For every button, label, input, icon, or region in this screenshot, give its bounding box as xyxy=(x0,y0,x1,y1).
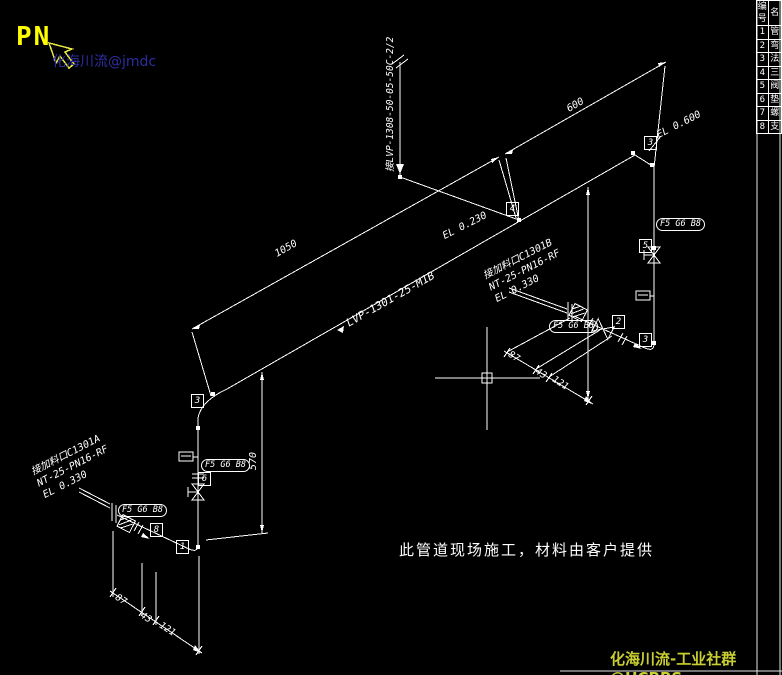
bom-row-no: 4 xyxy=(757,66,769,80)
fitting-tag-left-nozzle: F5 G6 B8 xyxy=(118,504,167,517)
bom-row-no: 2 xyxy=(757,39,769,53)
watermark-top: 化海川流@jmdc xyxy=(52,51,156,71)
dim-line-600 xyxy=(505,62,666,154)
fitting-tag-right-nozzle: F5 G6 B8 xyxy=(549,320,598,333)
bom-header-name: 名 xyxy=(768,1,781,26)
bom-row-name: 螺 xyxy=(768,107,781,121)
bom-row-name: 管 xyxy=(768,26,781,40)
ext-line-570 xyxy=(206,533,268,540)
construction-note: 此管道现场施工，材料由客户提供 xyxy=(399,539,654,560)
bom-row-no: 7 xyxy=(757,107,769,121)
item-bubble: 5 xyxy=(639,239,652,253)
bom-row-no: 5 xyxy=(757,80,769,94)
dimension-lines xyxy=(79,62,666,655)
item-bubble: 2 xyxy=(612,315,625,329)
flow-arrow-left xyxy=(141,533,150,539)
flow-arrow-branch xyxy=(396,164,404,174)
fitting-tag-left-riser: F5 G6 B8 xyxy=(201,459,250,472)
fitting-tag-right-riser: F5 G6 B8 xyxy=(656,218,705,231)
leader-left-nozzle xyxy=(79,488,110,508)
sheet-border xyxy=(560,0,782,675)
bom-row-no: 8 xyxy=(757,120,769,134)
ext-lines-1050 xyxy=(192,160,516,396)
bom-row-name: 法 xyxy=(768,53,781,67)
bom-row-name: 阀 xyxy=(768,80,781,94)
watermark-bottom: 化海川流-工业社群@HCBBS xyxy=(610,648,782,675)
bom-row-name: 三 xyxy=(768,66,781,80)
item-bubble: 1 xyxy=(176,540,189,554)
bom-header-no: 编号 xyxy=(757,1,769,26)
bom-row-no: 3 xyxy=(757,53,769,67)
bom-row-no: 1 xyxy=(757,26,769,40)
hatched-valve-left xyxy=(117,515,135,533)
flow-symbol-main-label xyxy=(337,326,344,333)
item-bubble: 8 xyxy=(150,523,163,537)
pipe-nodes xyxy=(141,151,656,549)
item-bubble: 3 xyxy=(639,333,652,347)
bom-row-name: 弯 xyxy=(768,39,781,53)
dimension-arrows xyxy=(192,62,666,653)
item-bubble: 4 xyxy=(506,202,519,216)
nozzle-flange-left xyxy=(112,503,116,523)
bom-row-no: 6 xyxy=(757,93,769,107)
cad-model-space[interactable]: PN 化海川流@jmdc 化海川流-工业社群@HCBBS 此管道现场施工，材料由… xyxy=(0,0,782,675)
item-bubble: 3 xyxy=(644,136,657,150)
ext-lines-600 xyxy=(506,66,665,221)
bom-row-name: 支 xyxy=(768,120,781,134)
item-bubble: 6 xyxy=(198,472,211,486)
bom-row-name: 垫 xyxy=(768,93,781,107)
dim-line-1050 xyxy=(192,157,499,329)
bom-table: 编号 名 1管 2弯 3法 4三 5阀 6垫 7螺 8支 xyxy=(756,0,782,134)
branch-pipe xyxy=(400,62,519,220)
item-bubble: 3 xyxy=(191,394,204,408)
fittings xyxy=(112,247,660,534)
pn-logo: PN xyxy=(16,22,51,52)
branch-pipe-label: 接LVP-1308-50-05-50C-2/2 xyxy=(382,37,396,172)
